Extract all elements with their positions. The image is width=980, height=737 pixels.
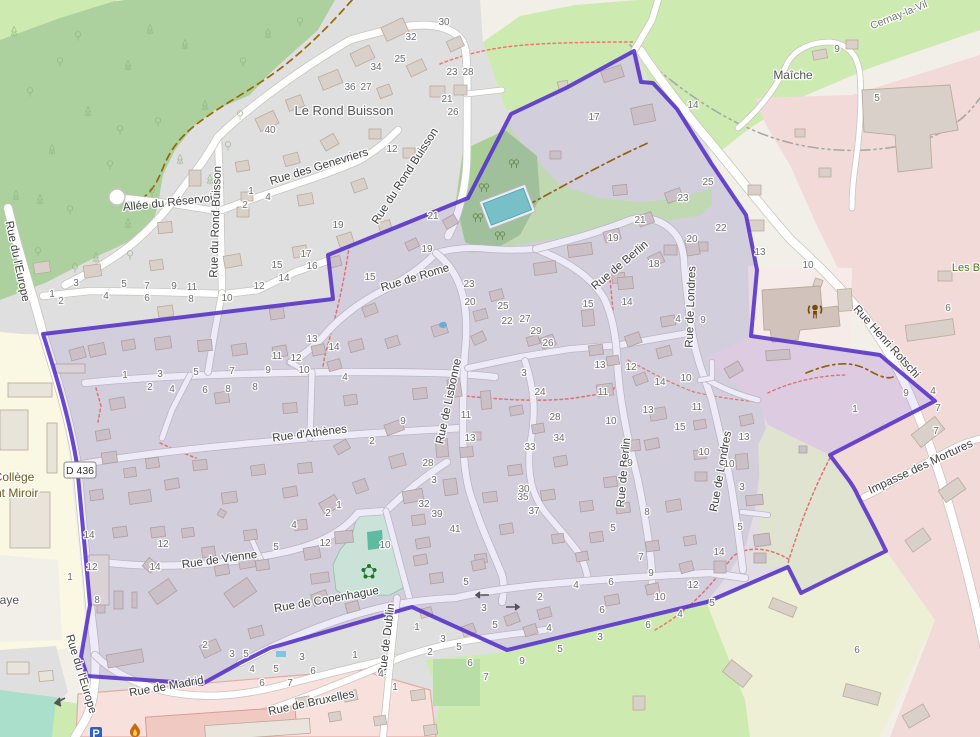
svg-text:5: 5: [463, 577, 469, 588]
svg-text:1: 1: [392, 682, 398, 693]
svg-text:7: 7: [935, 403, 941, 414]
svg-text:2: 2: [58, 296, 64, 307]
svg-text:26: 26: [447, 107, 459, 118]
svg-text:haye: haye: [0, 593, 19, 607]
svg-text:12: 12: [687, 580, 699, 591]
svg-text:3: 3: [739, 482, 745, 493]
svg-text:4: 4: [675, 314, 681, 325]
svg-text:21: 21: [634, 215, 646, 226]
svg-text:6: 6: [599, 605, 605, 616]
svg-text:5: 5: [610, 523, 616, 534]
svg-text:15: 15: [582, 299, 594, 310]
svg-text:27: 27: [519, 314, 531, 325]
svg-text:3: 3: [481, 603, 487, 614]
svg-text:1: 1: [49, 289, 55, 300]
svg-text:6: 6: [854, 645, 860, 656]
svg-text:6: 6: [259, 678, 265, 689]
svg-text:18: 18: [648, 259, 660, 270]
svg-text:4: 4: [291, 520, 297, 531]
svg-text:10: 10: [723, 459, 735, 470]
svg-text:7: 7: [287, 678, 293, 689]
svg-text:5: 5: [456, 642, 462, 653]
svg-text:10: 10: [221, 293, 233, 304]
svg-text:12: 12: [86, 562, 98, 573]
svg-text:2: 2: [369, 436, 375, 447]
svg-text:3: 3: [157, 369, 163, 380]
svg-text:9: 9: [400, 416, 406, 427]
svg-text:10: 10: [802, 260, 814, 271]
svg-text:9: 9: [648, 568, 654, 579]
svg-text:7: 7: [144, 281, 150, 292]
svg-text:8: 8: [644, 507, 650, 518]
svg-text:1: 1: [336, 500, 342, 511]
svg-text:40: 40: [264, 125, 276, 136]
svg-text:39: 39: [431, 509, 443, 520]
svg-text:1: 1: [248, 186, 254, 197]
svg-text:Le Rond Buisson: Le Rond Buisson: [294, 103, 393, 118]
svg-text:10: 10: [654, 592, 666, 603]
svg-text:14: 14: [83, 530, 95, 541]
svg-text:10: 10: [379, 540, 391, 551]
svg-text:25: 25: [702, 177, 714, 188]
svg-text:Collège: Collège: [0, 470, 35, 484]
svg-text:2: 2: [325, 508, 331, 519]
svg-text:9: 9: [834, 44, 840, 55]
svg-text:28: 28: [462, 67, 474, 78]
svg-text:33: 33: [524, 442, 536, 453]
svg-text:3: 3: [299, 652, 305, 663]
svg-text:14: 14: [149, 562, 161, 573]
svg-text:15: 15: [674, 422, 686, 433]
svg-text:5: 5: [557, 644, 563, 655]
svg-text:11: 11: [692, 402, 703, 413]
svg-text:22: 22: [715, 223, 727, 234]
svg-text:14: 14: [654, 377, 666, 388]
svg-text:37: 37: [528, 506, 540, 517]
svg-text:12: 12: [625, 362, 637, 373]
svg-text:11: 11: [272, 351, 283, 362]
svg-text:25: 25: [497, 301, 509, 312]
svg-text:6: 6: [310, 666, 316, 677]
svg-text:4: 4: [342, 372, 348, 383]
svg-text:4: 4: [265, 192, 271, 203]
svg-text:13: 13: [642, 405, 654, 416]
svg-text:28: 28: [422, 458, 434, 469]
svg-text:13: 13: [754, 247, 766, 258]
svg-text:23: 23: [463, 279, 475, 290]
svg-text:11: 11: [461, 410, 472, 421]
svg-text:12: 12: [290, 353, 302, 364]
svg-text:32: 32: [405, 32, 417, 43]
svg-text:6: 6: [202, 385, 208, 396]
svg-text:14: 14: [687, 100, 699, 111]
svg-text:4: 4: [103, 291, 109, 302]
svg-text:15: 15: [271, 260, 283, 271]
svg-text:4: 4: [249, 664, 255, 675]
svg-text:21: 21: [427, 211, 439, 222]
svg-text:9: 9: [700, 315, 706, 326]
svg-text:4: 4: [677, 609, 683, 620]
svg-text:5: 5: [193, 367, 199, 378]
svg-text:30: 30: [438, 17, 450, 28]
svg-text:28: 28: [549, 412, 561, 423]
svg-text:24: 24: [534, 387, 546, 398]
svg-text:6: 6: [945, 303, 951, 314]
svg-text:4: 4: [573, 580, 579, 591]
svg-text:5: 5: [492, 620, 498, 631]
svg-text:20: 20: [464, 297, 476, 308]
svg-text:2: 2: [147, 382, 153, 393]
svg-text:3: 3: [440, 634, 446, 645]
svg-text:10: 10: [605, 416, 617, 427]
svg-text:5: 5: [273, 542, 279, 553]
svg-text:34: 34: [553, 433, 565, 444]
svg-text:2: 2: [202, 640, 208, 651]
svg-text:10: 10: [298, 365, 310, 376]
svg-text:10: 10: [698, 447, 710, 458]
svg-text:23: 23: [446, 67, 458, 78]
svg-text:Maîche: Maîche: [773, 68, 813, 82]
svg-text:6: 6: [608, 577, 614, 588]
svg-text:Les B: Les B: [952, 262, 980, 274]
svg-text:19: 19: [332, 220, 344, 231]
svg-text:10: 10: [680, 373, 692, 384]
svg-text:1: 1: [122, 370, 128, 381]
svg-text:19: 19: [421, 244, 433, 255]
svg-text:7: 7: [229, 366, 235, 377]
svg-text:Saint Miroir: Saint Miroir: [0, 486, 38, 500]
svg-text:41: 41: [449, 524, 461, 535]
svg-text:6: 6: [645, 620, 651, 631]
svg-text:25: 25: [394, 54, 406, 65]
svg-text:6: 6: [144, 293, 150, 304]
svg-text:21: 21: [441, 94, 453, 105]
svg-text:12: 12: [157, 539, 169, 550]
svg-text:3: 3: [597, 632, 603, 643]
svg-text:16: 16: [306, 261, 318, 272]
svg-text:5: 5: [874, 93, 880, 104]
svg-text:9: 9: [519, 656, 525, 667]
svg-text:19: 19: [607, 233, 619, 244]
svg-text:9: 9: [903, 388, 909, 399]
svg-text:13: 13: [306, 334, 318, 345]
svg-text:17: 17: [588, 112, 600, 123]
svg-text:2: 2: [242, 200, 248, 211]
svg-text:8: 8: [188, 294, 194, 305]
svg-text:11: 11: [598, 387, 609, 398]
svg-text:20: 20: [686, 234, 698, 245]
svg-text:23: 23: [677, 193, 689, 204]
svg-text:4: 4: [378, 669, 384, 680]
svg-text:8: 8: [252, 382, 258, 393]
svg-text:12: 12: [319, 538, 331, 549]
svg-text:27: 27: [360, 82, 372, 93]
svg-text:13: 13: [594, 360, 606, 371]
svg-text:34: 34: [370, 62, 382, 73]
svg-text:14: 14: [713, 547, 725, 558]
svg-text:22: 22: [501, 316, 513, 327]
svg-text:3: 3: [229, 649, 235, 660]
svg-text:1: 1: [352, 650, 358, 661]
svg-text:14: 14: [278, 273, 290, 284]
svg-text:5: 5: [243, 649, 249, 660]
svg-text:14: 14: [621, 297, 633, 308]
svg-text:5: 5: [273, 664, 279, 675]
svg-text:36: 36: [344, 82, 356, 93]
svg-text:4: 4: [169, 384, 175, 395]
svg-text:9: 9: [627, 458, 633, 469]
svg-text:26: 26: [542, 338, 554, 349]
svg-text:8: 8: [94, 595, 100, 606]
svg-text:8: 8: [225, 384, 231, 395]
svg-text:17: 17: [300, 249, 312, 260]
svg-text:D 436: D 436: [66, 465, 94, 477]
svg-text:3: 3: [521, 368, 527, 379]
svg-text:7: 7: [638, 552, 644, 563]
svg-text:3: 3: [431, 475, 437, 486]
svg-text:29: 29: [530, 326, 542, 337]
svg-text:5: 5: [121, 279, 127, 290]
svg-text:5: 5: [737, 522, 743, 533]
svg-text:14: 14: [328, 342, 340, 353]
svg-text:7: 7: [483, 672, 489, 683]
svg-text:2: 2: [537, 592, 543, 603]
svg-text:11: 11: [187, 282, 198, 293]
svg-text:4: 4: [930, 386, 936, 397]
svg-text:6: 6: [467, 658, 473, 669]
svg-text:5: 5: [709, 598, 715, 609]
svg-text:30: 30: [518, 484, 530, 495]
svg-text:4: 4: [546, 623, 552, 634]
svg-text:1: 1: [852, 404, 858, 415]
svg-text:9: 9: [265, 365, 271, 376]
svg-text:1: 1: [414, 622, 420, 633]
svg-text:2: 2: [427, 647, 433, 658]
svg-text:P: P: [92, 728, 99, 737]
svg-text:1: 1: [67, 572, 73, 583]
svg-text:13: 13: [464, 433, 476, 444]
svg-text:7: 7: [933, 426, 939, 437]
svg-text:13: 13: [738, 432, 750, 443]
svg-text:3: 3: [73, 278, 79, 289]
svg-text:32: 32: [418, 499, 430, 510]
svg-text:12: 12: [386, 144, 398, 155]
svg-text:9: 9: [171, 281, 177, 292]
svg-text:12: 12: [253, 281, 265, 292]
svg-text:15: 15: [364, 272, 376, 283]
